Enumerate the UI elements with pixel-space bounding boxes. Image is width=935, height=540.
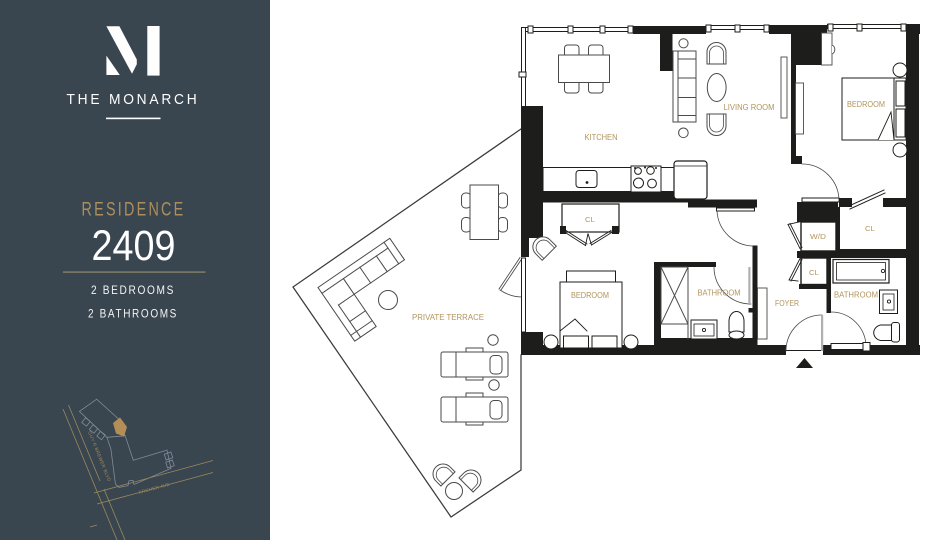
svg-text:BATHROOM: BATHROOM bbox=[834, 290, 878, 300]
svg-text:W/D: W/D bbox=[810, 232, 827, 241]
svg-text:BEDROOM: BEDROOM bbox=[847, 99, 885, 109]
svg-text:FOYER: FOYER bbox=[775, 298, 799, 308]
svg-text:CL: CL bbox=[809, 268, 819, 277]
svg-text:LIVING ROOM: LIVING ROOM bbox=[724, 102, 775, 112]
svg-text:BATHROOM: BATHROOM bbox=[698, 288, 741, 298]
svg-text:BEDROOM: BEDROOM bbox=[571, 290, 609, 300]
svg-text:PRIVATE TERRACE: PRIVATE TERRACE bbox=[412, 312, 484, 322]
svg-text:KITCHEN: KITCHEN bbox=[585, 132, 618, 142]
svg-text:CL: CL bbox=[585, 215, 595, 224]
svg-text:CL: CL bbox=[865, 224, 875, 233]
